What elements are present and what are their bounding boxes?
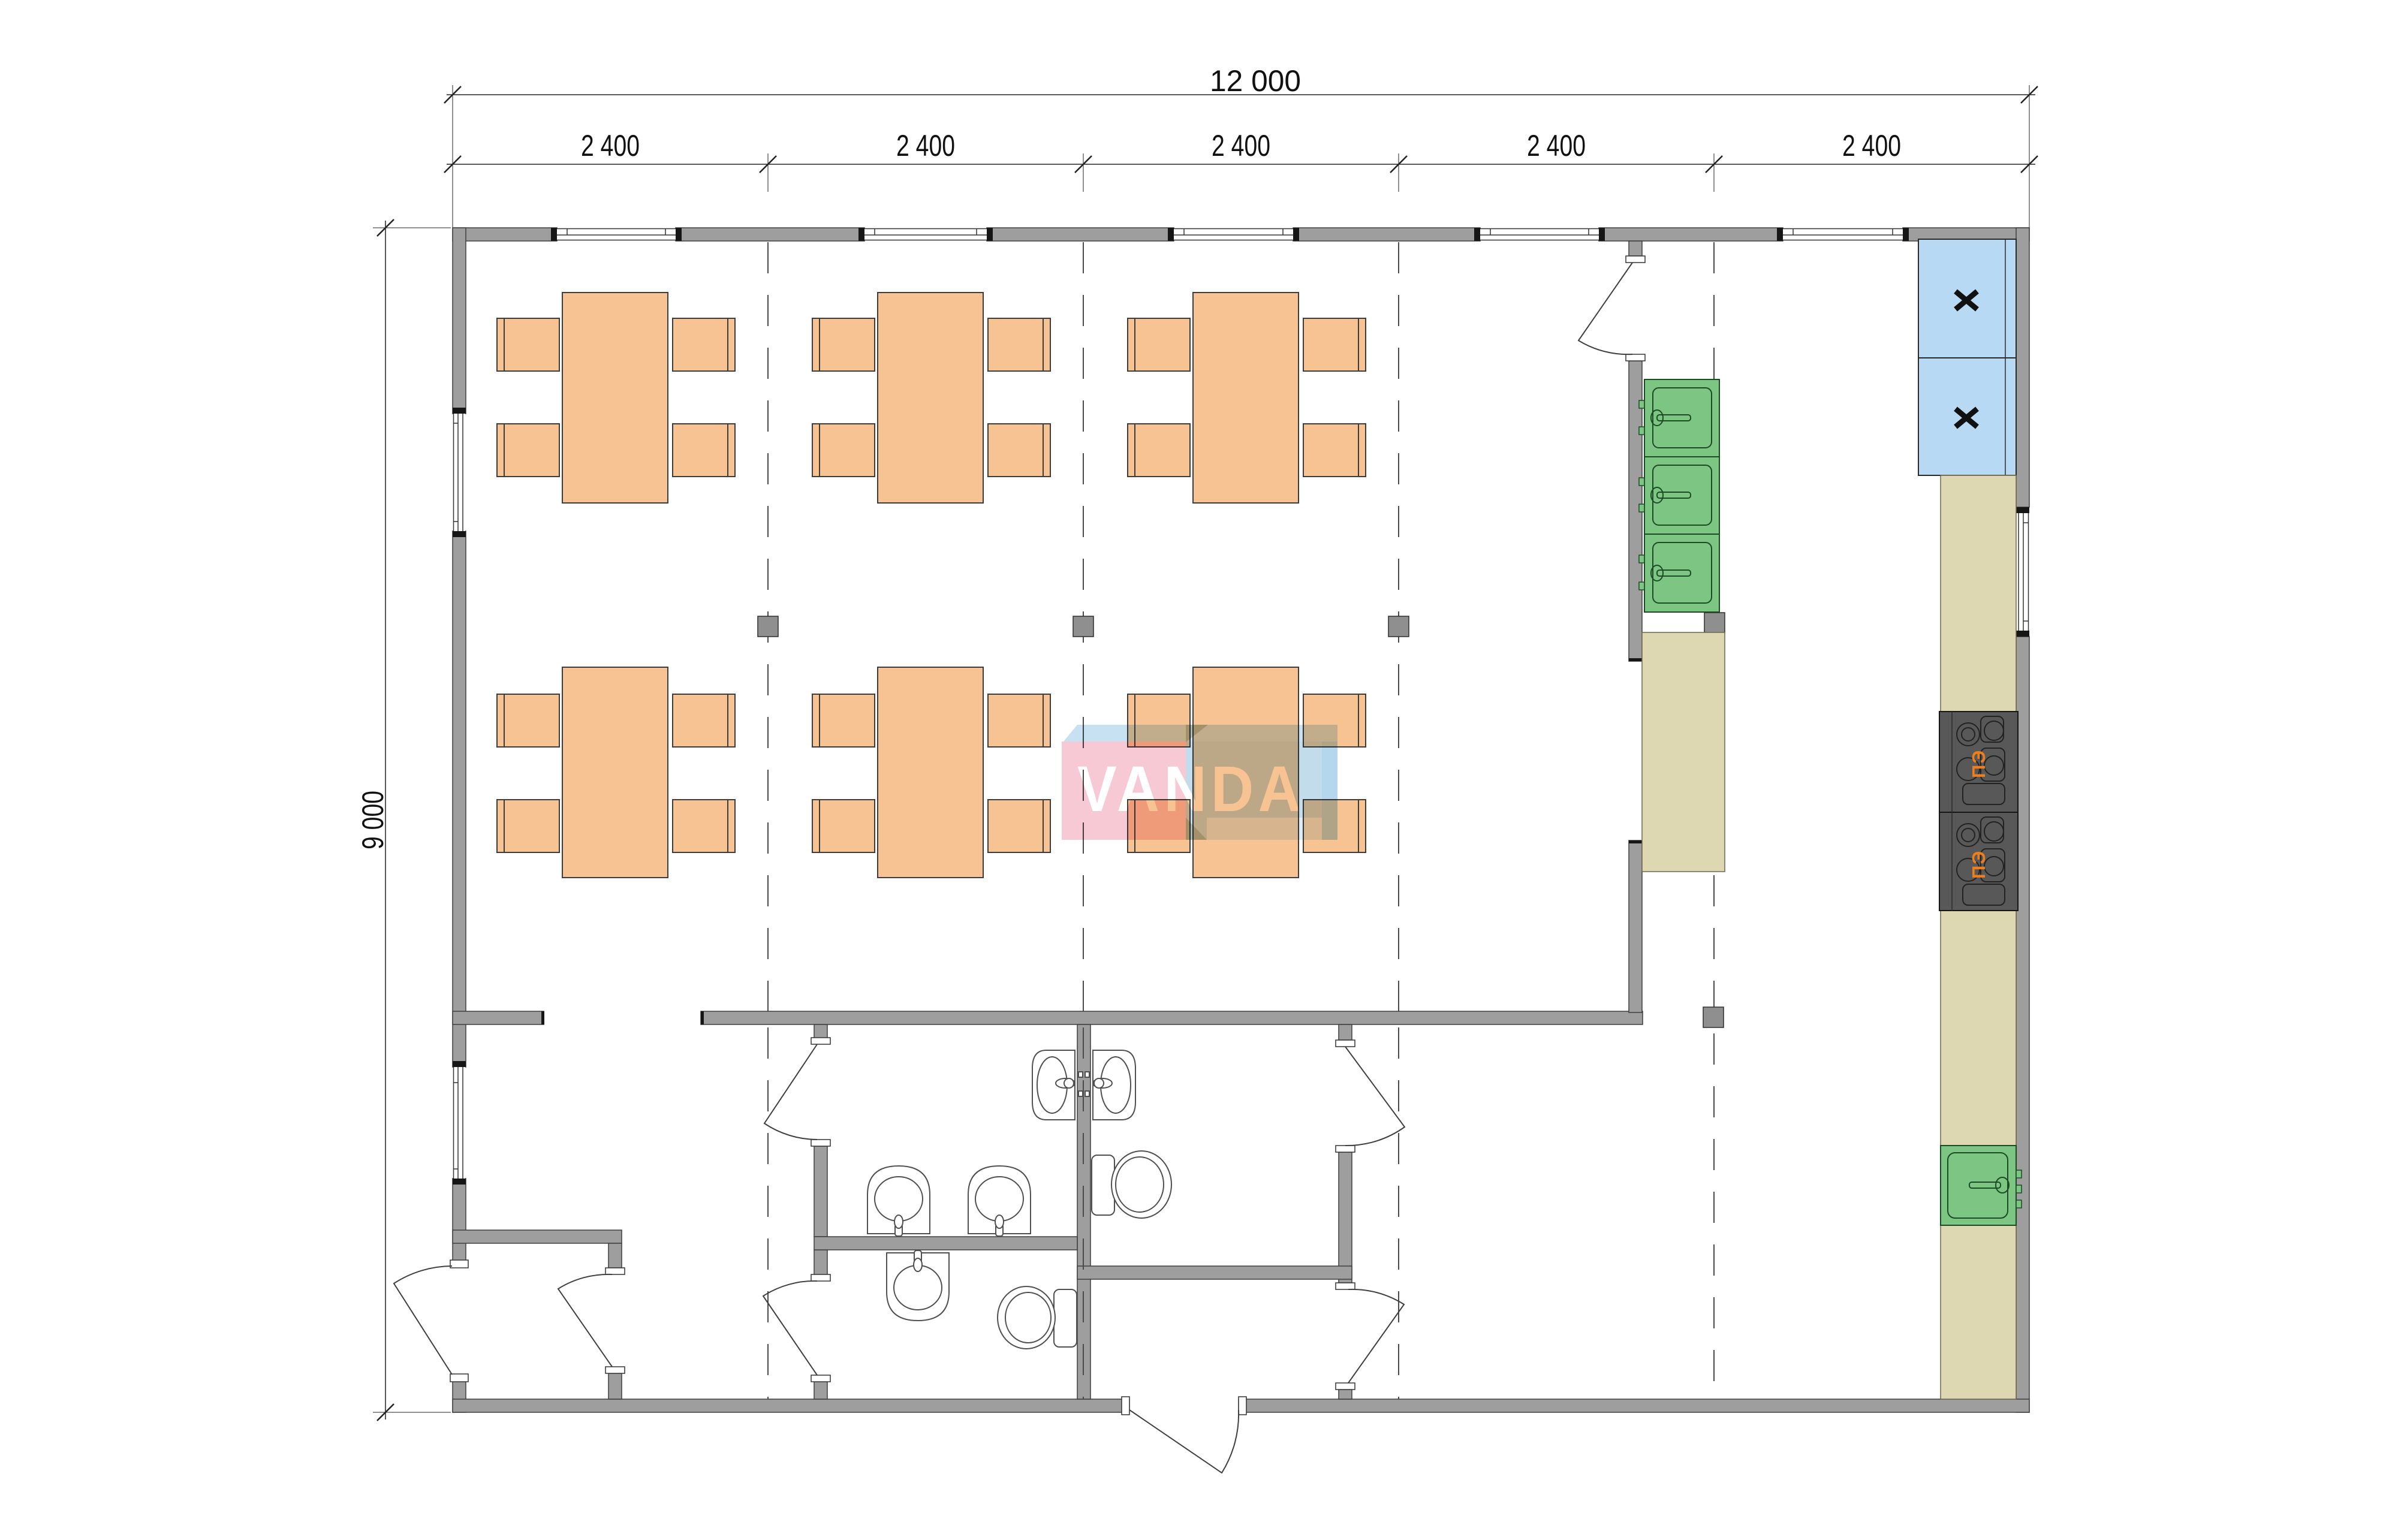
svg-text:2 400: 2 400	[581, 129, 640, 162]
svg-text:2 400: 2 400	[1212, 129, 1270, 162]
svg-text:2 400: 2 400	[896, 129, 955, 162]
svg-text:2 400: 2 400	[1842, 129, 1901, 162]
svg-text:9 000: 9 000	[356, 791, 390, 849]
svg-text:12 000: 12 000	[1210, 64, 1301, 98]
svg-text:ПЭ: ПЭ	[1968, 850, 1989, 879]
svg-text:2 400: 2 400	[1527, 129, 1586, 162]
svg-text:ПЭ: ПЭ	[1968, 749, 1989, 778]
